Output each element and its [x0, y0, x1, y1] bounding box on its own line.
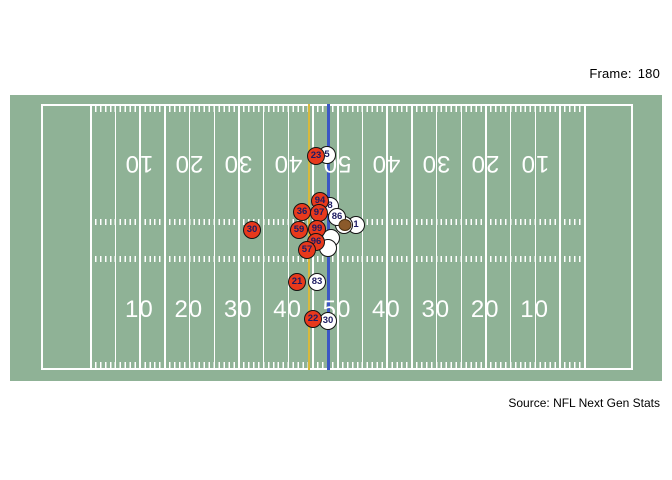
yard-line	[485, 104, 487, 370]
football-icon	[339, 219, 352, 231]
source-caption: Source: NFL Next Gen Stats	[508, 396, 660, 410]
yard-number-top: 40	[372, 149, 401, 177]
yard-number-bottom: 20	[471, 296, 500, 324]
player-home-21: 21	[288, 273, 306, 291]
yard-line	[461, 104, 463, 370]
yard-line	[214, 104, 216, 370]
football-field: 101020203030404050504040303020201010 523…	[10, 95, 662, 381]
yard-number-top: 10	[125, 149, 154, 177]
yard-line	[584, 104, 586, 370]
yard-number-bottom: 10	[520, 296, 549, 324]
yard-number-top: 20	[174, 149, 203, 177]
yard-number-top: 30	[421, 149, 450, 177]
yard-line	[189, 104, 191, 370]
yard-line	[164, 104, 166, 370]
yard-number-bottom: 10	[125, 296, 154, 324]
yard-line	[288, 104, 290, 370]
player-away-83: 83	[308, 273, 326, 291]
frame-counter-label: Frame:	[589, 66, 631, 81]
player-home-59: 59	[290, 221, 308, 239]
yard-line	[510, 104, 512, 370]
yard-number-bottom: 20	[174, 296, 203, 324]
yard-number-top: 30	[224, 149, 253, 177]
play-visualization: Frame:180 101020203030404050504040303020…	[0, 0, 672, 480]
yard-line	[386, 104, 388, 370]
yard-number-bottom: 30	[421, 296, 450, 324]
yard-number-bottom: 30	[224, 296, 253, 324]
yard-line	[535, 104, 537, 370]
player-home-22: 22	[304, 310, 322, 328]
yard-line	[263, 104, 265, 370]
yard-line	[362, 104, 364, 370]
hash-mark-row	[90, 362, 584, 368]
yard-line	[115, 104, 117, 370]
player-home-23: 23	[307, 147, 325, 165]
player-home-30: 30	[243, 221, 261, 239]
yard-line	[559, 104, 561, 370]
yard-line	[436, 104, 438, 370]
yard-number-top: 40	[273, 149, 302, 177]
yard-number-bottom: 40	[273, 296, 302, 324]
frame-counter: Frame:180	[589, 66, 660, 81]
player-home-36: 36	[293, 203, 311, 221]
yard-number-top: 20	[471, 149, 500, 177]
frame-counter-value: 180	[638, 66, 660, 81]
hash-mark-row	[90, 106, 584, 112]
yard-line	[238, 104, 240, 370]
yard-number-top: 10	[520, 149, 549, 177]
yard-line	[90, 104, 92, 370]
yard-number-bottom: 40	[372, 296, 401, 324]
player-home-57: 57	[298, 241, 316, 259]
hash-mark-row	[90, 256, 584, 262]
yard-line	[139, 104, 141, 370]
yard-line	[411, 104, 413, 370]
